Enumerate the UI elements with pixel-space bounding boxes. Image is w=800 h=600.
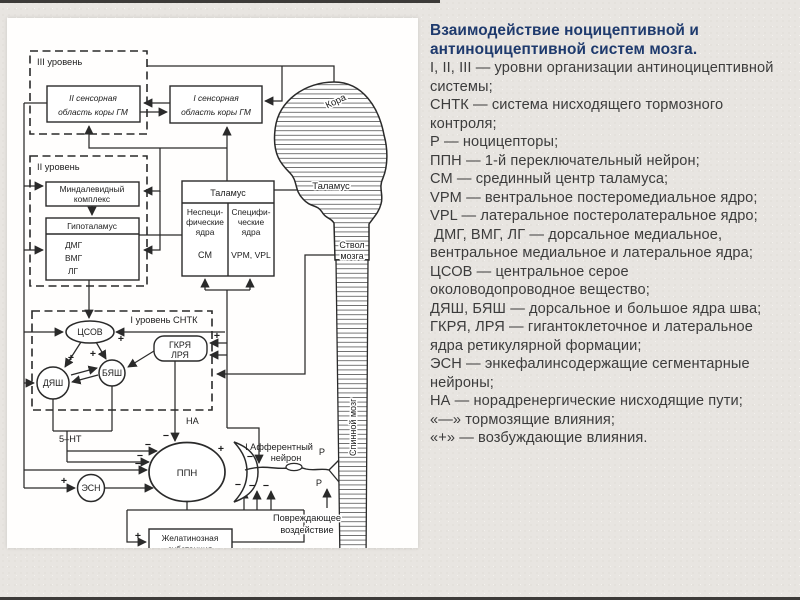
legend-line: ППН — 1-й переключательный нейрон; — [430, 152, 792, 171]
esn-label: ЭСН — [81, 483, 100, 493]
legend-line: VPL — латеральное постеролатеральное ядр… — [430, 207, 792, 226]
plus-tsov: + — [118, 333, 124, 345]
afferent-label-2: нейрон — [271, 453, 302, 463]
legend-line: ДЯШ, БЯШ — дорсальное и большое ядра шва… — [430, 300, 792, 319]
nonspecific-label-3: ядра — [196, 227, 215, 237]
legend-line: СМ — срединный центр таламуса; — [430, 170, 792, 189]
legend-title-line: Взаимодействие ноцицептивной и — [430, 21, 792, 40]
plus-gelatinous: + — [135, 530, 141, 542]
nonspecific-label-1: Неспеци- — [187, 207, 224, 217]
legend-line: ДМГ, ВМГ, ЛГ — дорсальное медиальное, — [430, 226, 792, 245]
plus-gkrya: + — [214, 330, 220, 342]
brainstem-label-2: мозга — [340, 251, 363, 261]
minus-axon: − — [247, 451, 253, 463]
thalamus-label: Таламус — [210, 188, 246, 198]
ppn-label: ППН — [177, 468, 198, 479]
cortex1-label-1: I сенсорная — [193, 93, 239, 103]
afferent-label-1: I Афферентный — [245, 442, 313, 452]
plus-byash: + — [90, 348, 96, 360]
nonspecific-label-2: фические — [186, 217, 224, 227]
level1-label: I уровень СНТК — [130, 315, 198, 325]
thalamus-brain-label: Таламус — [312, 181, 350, 192]
specific-label-3: ядра — [242, 227, 261, 237]
dmg-label: ДМГ — [65, 240, 83, 250]
top-edge-line — [0, 0, 440, 3]
slide: { "colors": { "background": "#e8e5e1", "… — [0, 0, 800, 600]
legend-title-line: антиноцицептивной систем мозга. — [430, 40, 792, 59]
ht5-label: 5–НТ — [59, 434, 82, 444]
legend-line: ЦСОВ — центральное серое — [430, 263, 792, 282]
legend-line: СНТК — система нисходящего тормозного — [430, 96, 792, 115]
vmg-label: ВМГ — [65, 253, 83, 263]
tsov-label: ЦСОВ — [77, 327, 103, 337]
cortex1-box — [170, 86, 262, 123]
minus-presyn-1: − — [235, 479, 241, 491]
diagram-panel: Кора Таламус Ствол мозга Спинной мозг II… — [7, 18, 418, 548]
amygdala-label-1: Миндалевидный — [60, 184, 125, 194]
line-top-to-cortex1 — [265, 66, 282, 101]
cortex1-label-2: область коры ГМ — [181, 107, 251, 117]
plus-esn: + — [61, 475, 67, 487]
plus-dyash: + — [68, 352, 74, 364]
minus-ppn-3: − — [135, 458, 141, 470]
specific-label-1: Специфи- — [231, 207, 270, 217]
lg-label: ЛГ — [68, 266, 78, 276]
brain-shape: Кора Таламус Ствол мозга Спинной мозг — [274, 82, 386, 548]
line-lvl3-to-cortex — [147, 66, 334, 84]
afferent-soma — [286, 463, 302, 470]
na-label: НА — [186, 416, 200, 426]
gelatinous-label-1: Желатинозная — [162, 533, 219, 543]
byash-label: БЯШ — [102, 368, 122, 378]
cortex2-label-1: II сенсорная — [69, 93, 117, 103]
legend-line: «+» — возбуждающие влияния. — [430, 429, 792, 448]
legend-line: ЭСН — энкефалинсодержащие сегментарные — [430, 355, 792, 374]
legend-line: ядра ретикулярной формации; — [430, 337, 792, 356]
legend-line: Р — ноцицепторы; — [430, 133, 792, 152]
cortex2-label-2: область коры ГМ — [58, 107, 128, 117]
spinal-cord-label: Спинной мозг — [348, 398, 358, 456]
legend-line: I, II, III — уровни организации антиноци… — [430, 59, 792, 78]
lrya-label: ЛРЯ — [171, 350, 189, 360]
gelatinous-label-2: субстанция — [168, 544, 212, 548]
brain-systems-diagram: Кора Таламус Ствол мозга Спинной мозг II… — [7, 18, 418, 548]
legend-line: нейроны; — [430, 374, 792, 393]
legend-line: вентральное медиальное и латеральное ядр… — [430, 244, 792, 263]
hypothalamus-label: Гипоталамус — [67, 221, 117, 231]
p-label-upper: Р — [319, 447, 325, 457]
damage-label-1: Повреждающее — [273, 513, 341, 523]
minus-na: − — [163, 430, 169, 442]
specific-label-2: ческие — [238, 217, 265, 227]
p-label-lower: Р — [316, 478, 322, 488]
legend-line: VPM — вентральное постеромедиальное ядро… — [430, 189, 792, 208]
amygdala-label-2: комплекс — [74, 194, 110, 204]
legend-line: «—» тормозящие влияния; — [430, 411, 792, 430]
level2-label: II уровень — [37, 162, 80, 172]
minus-ppn-1: − — [145, 439, 151, 451]
sm-label: СМ — [198, 250, 212, 260]
legend-line: системы; — [430, 78, 792, 97]
damage-label-2: воздействие — [280, 525, 333, 535]
gkrya-label: ГКРЯ — [169, 340, 191, 350]
minus-presyn-3: − — [263, 480, 269, 492]
plus-afferent: + — [218, 443, 224, 455]
legend-line: НА — норадренергические нисходящие пути; — [430, 392, 792, 411]
legend-line: ГКРЯ, ЛРЯ — гигантоклеточное и латеральн… — [430, 318, 792, 337]
legend-line: околоводопроводное вещество; — [430, 281, 792, 300]
vpm-vpl-label: VPM, VPL — [231, 250, 271, 260]
brainstem-label-1: Ствол — [339, 240, 364, 250]
minus-presyn-2: − — [249, 480, 255, 492]
legend-line: контроля; — [430, 115, 792, 134]
dyash-label: ДЯШ — [43, 378, 63, 388]
level3-label: III уровень — [37, 57, 82, 67]
legend-text-block: Взаимодействие ноцицептивной и антиноциц… — [430, 21, 792, 448]
